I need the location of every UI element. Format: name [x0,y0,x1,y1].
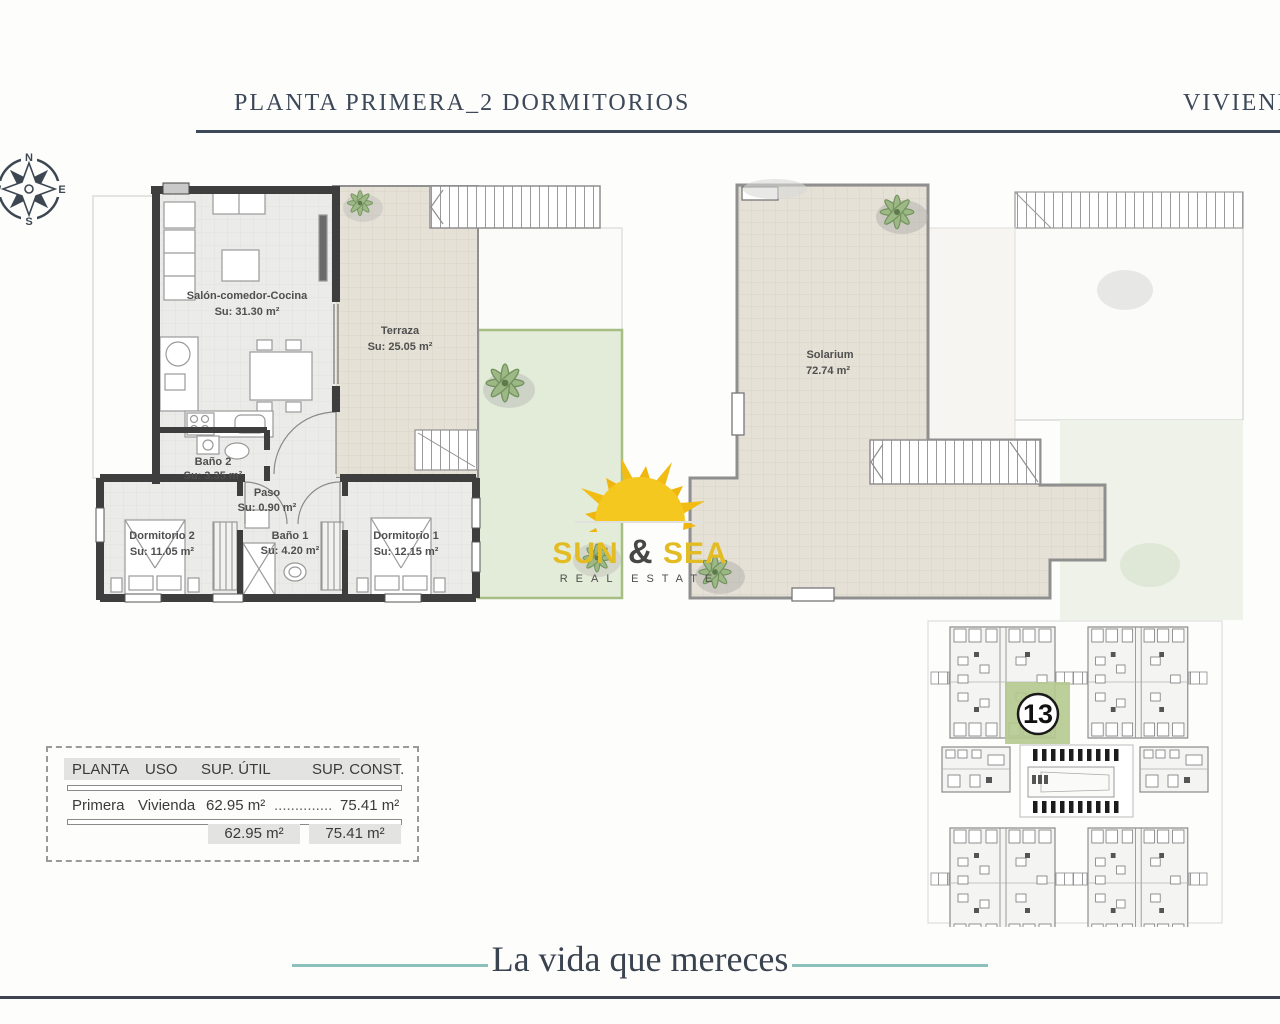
room-label: Dormitorio 2 [129,530,194,542]
total-sup-util: 62.95 m² [208,824,300,844]
cell-dots: .............. [274,797,332,814]
roof-strip [928,228,1015,440]
cell-planta: Primera [72,797,125,814]
solarium-floor-plan: Solarium 72.74 m² [680,175,1250,625]
compass-n: N [25,152,33,164]
logo-wordmark: SUN & SEA [540,537,740,569]
logo-word-sea: SEA [663,537,728,570]
unit-number: 13 [1023,699,1053,729]
area-summary-table: PLANTA USO SUP. ÚTIL SUP. CONST. Primera… [46,746,419,862]
pool-court [1020,745,1133,817]
tagline-rule-right [792,964,988,967]
compass-s: S [25,216,32,228]
page-title: PLANTA PRIMERA_2 DORMITORIOS [234,90,690,117]
compass-rose-icon: N E S W [0,146,72,232]
cell-sup-const: 75.41 m² [340,797,399,814]
room-label: Paso [254,487,281,499]
apartment-block [950,828,1055,927]
compass-e: E [58,184,65,196]
sun-icon [565,452,715,532]
garden-steps [415,430,478,470]
room-area: Su: 4.20 m² [261,545,320,557]
logo-ampersand: & [628,533,654,571]
room-area: 72.74 m² [806,365,850,377]
site-key-plan: 13 [925,615,1225,927]
room-label: Solarium [806,349,853,361]
table-rule [67,785,402,791]
brochure-page: PLANTA PRIMERA_2 DORMITORIOS VIVIENDA N … [0,0,1280,1024]
unit-badge: 13 [1018,694,1058,734]
stairs-top-right [1015,192,1243,228]
room-label: Baño 2 [195,456,232,468]
col-header-sup-util: SUP. ÚTIL [201,761,271,778]
title-underline [196,130,1280,133]
room-label: Salón-comedor-Cocina [187,290,308,302]
sun-and-sea-logo: SUN & SEA REAL ESTATE [540,452,740,585]
apartment-block [1088,828,1188,927]
tagline: La vida que mereces [0,938,1280,980]
cell-sup-util: 62.95 m² [206,797,265,814]
neighbour-boundary [93,196,156,478]
room-label: Dormitorio 1 [373,530,438,542]
wall-label-chip [163,183,189,194]
cell-uso: Vivienda [138,797,195,814]
room-area: Su: 31.30 m² [215,306,280,318]
logo-word-sun: SUN [552,537,618,570]
room-label: Baño 1 [272,530,309,542]
room-area: Su: 12.15 m² [374,546,439,558]
tagline-rule-left [292,964,488,967]
neighbour-roof [478,228,622,330]
col-header-uso: USO [145,761,178,778]
parking-row [1030,749,1122,761]
faint-tree [1120,543,1180,587]
apartment-block [1088,627,1188,738]
logo-subtitle: REAL ESTATE [540,573,740,585]
col-header-planta: PLANTA [72,761,129,778]
col-header-sup-const: SUP. CONST. [312,761,404,778]
room-area: Su: 0.90 m² [238,502,297,514]
room-area: Su: 3.35 m² [184,470,243,482]
faint-tree [1097,270,1153,310]
stairs-top [430,186,600,228]
side-unit [1140,747,1208,792]
room-area: Su: 11.05 m² [130,546,195,558]
room-area: Su: 25.05 m² [368,341,433,353]
page-title-right: VIVIENDA [1183,90,1280,117]
solarium-stairs [870,440,1040,484]
parking-row [1030,801,1122,813]
total-sup-const: 75.41 m² [309,824,401,844]
side-unit [942,747,1010,792]
bottom-rule [0,996,1280,999]
room-label: Terraza [381,325,420,337]
